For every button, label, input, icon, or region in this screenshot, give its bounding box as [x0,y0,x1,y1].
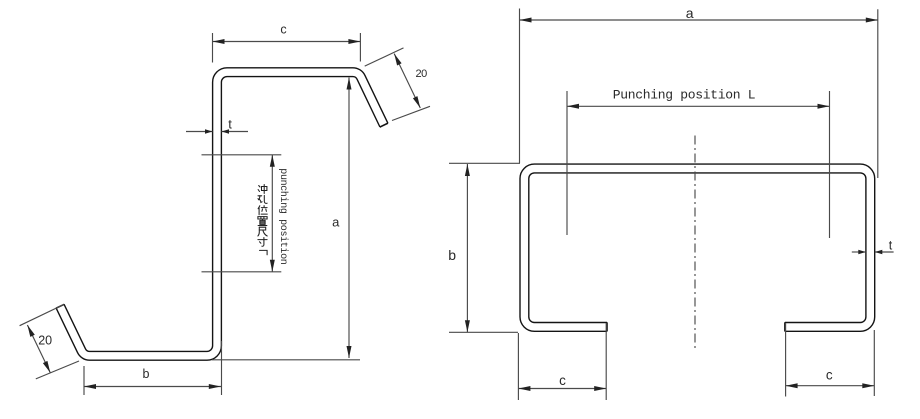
svg-text:20: 20 [416,68,428,80]
svg-text:a: a [332,214,340,229]
svg-text:c: c [280,23,286,37]
svg-text:c: c [826,368,833,383]
svg-text:punching position: punching position [277,168,289,264]
svg-text:b: b [448,247,456,263]
svg-text:Punching position L: Punching position L [613,88,756,103]
svg-text:20: 20 [38,333,52,347]
svg-text:b: b [143,367,150,381]
svg-text:c: c [559,373,566,388]
svg-text:t: t [889,239,893,253]
svg-text:a: a [686,5,694,21]
svg-text:t: t [228,116,232,131]
